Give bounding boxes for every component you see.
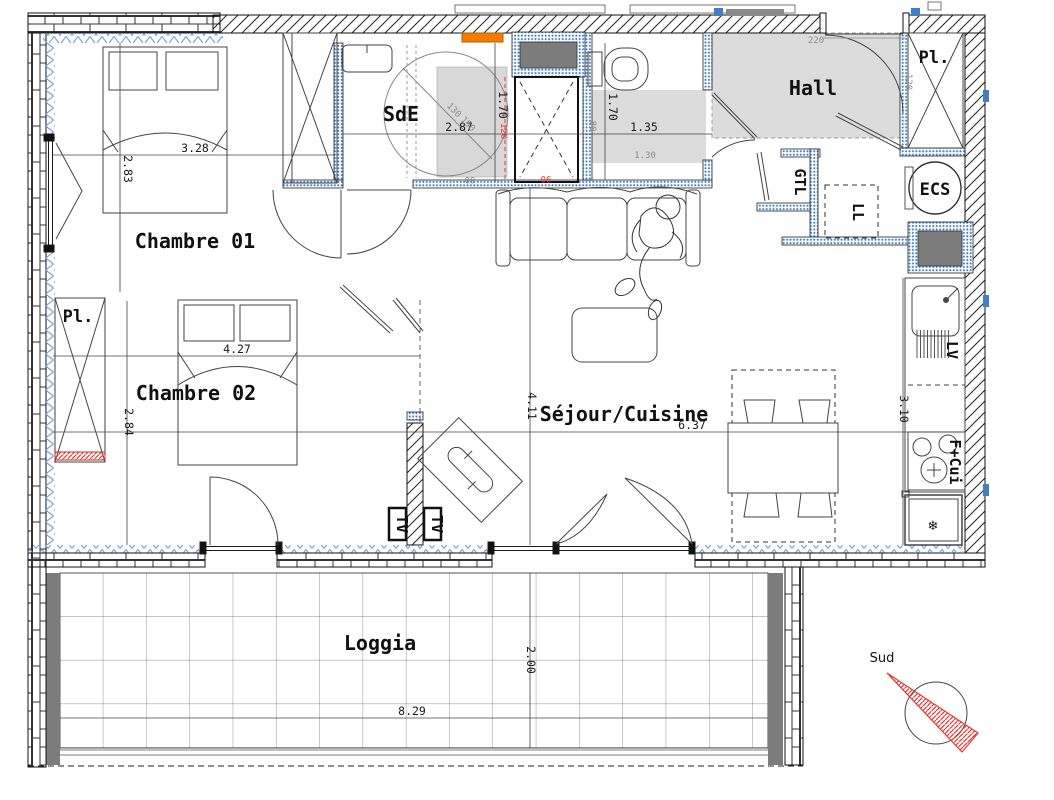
snowflake-icon: ❄ [928,519,939,534]
coffee-table [572,308,657,362]
insulation-top [43,33,223,43]
window-swing [210,477,278,545]
wardrobe-chambre1 [283,33,337,183]
door-chambre2 [340,285,423,333]
equip-label-lv: LV [943,341,961,359]
room-label-sde: SdE [383,102,419,126]
dim-shower-clearance: 120 [498,123,508,139]
window-swing [56,143,82,239]
loggia-pillar-left [46,573,60,765]
dim-chambre2-height: 2.84 [122,408,136,436]
compass-label: Sud [870,651,895,666]
floor-plan: Chambre 01 Chambre 02 SdE Hall Séjour/Cu… [0,0,1054,800]
loggia-tile-grid [60,573,768,748]
duct-shaft-kitchen [908,222,973,273]
equip-label-gtl: GTL [791,168,809,195]
dim-wc-side: 80 [587,121,597,132]
wall-top-party-right [906,15,985,33]
dim-entrance-door: 220 [808,36,824,46]
sofa [496,187,700,266]
duct-shaft-sde [512,32,585,77]
door-swing [556,478,692,544]
dim-chambre1-height: 2.83 [121,155,135,183]
equip-label-ll: LL [849,203,867,221]
door-gtl [757,152,769,201]
bed-chambre1 [103,47,227,213]
equip-label-tv-right: TV [428,515,446,533]
dim-shower-width: 90 [541,173,552,183]
dim-hall-clearance: 120 [903,74,913,90]
closet-label-entree: Pl. [919,48,950,68]
radiator-diagonal [418,418,523,523]
door-chambre1 [273,190,341,258]
fridge [902,491,962,545]
closet-label-chambre2: Pl. [63,307,94,327]
room-label-chambre1: Chambre 01 [135,229,255,253]
compass: Sud [870,651,978,752]
equip-label-tv-left: TV [393,515,411,533]
dim-cuisine-height: 3.10 [897,395,911,423]
dim-sde-height: 1.70 [496,91,510,119]
wall-top-party [213,15,823,33]
door-sde [347,190,411,254]
equip-label-ecs: ECS [920,180,951,200]
loggia-pillar-right [768,573,783,765]
person-figure [612,195,683,321]
loggia [28,567,803,766]
dim-vanity-width: 60 [465,174,476,184]
dim-wc-height: 1.70 [606,93,620,121]
dining-set [728,370,838,542]
room-label-chambre2: Chambre 02 [136,381,256,405]
dim-loggia-width: 8.29 [398,704,426,718]
wall-top-left-brick [28,13,220,33]
insulation-left-a [46,43,55,140]
equip-label-cooker: F+Cui [946,439,964,484]
dim-loggia-depth: 2.00 [524,646,538,674]
radiator [462,33,503,42]
room-label-loggia: Loggia [344,631,416,655]
dim-wc-width: 1.35 [630,120,658,134]
wall-right-party [965,33,985,553]
insulation-left-b [46,246,55,545]
wall-left-brick [28,33,46,767]
dim-chambre2-width: 4.27 [223,342,251,356]
compass-needle [887,673,978,752]
toilet [588,48,648,90]
dim-sejour-width: 6.37 [678,418,706,432]
room-label-hall: Hall [789,76,837,100]
dim-chambre1-width: 3.28 [181,141,209,155]
dim-sejour-height: 4.11 [525,392,539,420]
loggia-wall-right [785,567,803,765]
dim-wc-depth: 1.30 [634,151,656,161]
